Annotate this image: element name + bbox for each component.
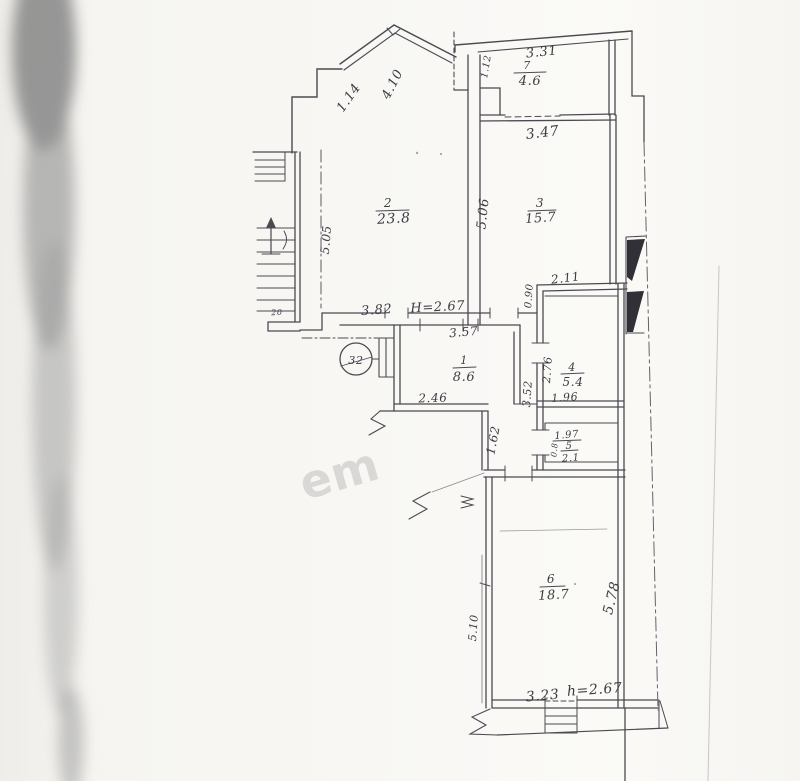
room2-number: 2 — [383, 196, 392, 210]
room6-area: 18.7 — [538, 587, 570, 604]
apartment-number: 32 — [348, 354, 363, 367]
dim-room3-width-top: 3.47 — [525, 123, 560, 143]
plan-labels: 1.14 4.10 3.31 7 4.6 1.12 3.47 2 23.8 5.… — [270, 43, 624, 705]
wall-lines — [253, 25, 719, 781]
room4-area: 5.4 — [563, 375, 584, 389]
watermark-text: em — [293, 437, 385, 511]
scan-smudge-artifact — [12, 0, 84, 781]
room3-area: 15.7 — [525, 210, 557, 227]
bay-window-walls — [292, 25, 468, 153]
dim-room2-height: 5.05 — [318, 225, 334, 255]
dim-room5-depth: 0.8 — [549, 442, 559, 457]
room3-number: 3 — [536, 196, 544, 210]
height-capital-h: H=2.67 — [409, 299, 466, 317]
room2-area: 23.8 — [376, 210, 411, 228]
stair-note: 20 — [270, 308, 283, 317]
hallway-walls — [369, 411, 488, 519]
room7-number: 7 — [523, 59, 531, 72]
dim-room6-width: 3.23 — [525, 687, 560, 706]
stair-direction-arrowhead — [266, 217, 276, 228]
dim-bay-right: 4.10 — [379, 67, 407, 103]
room1-area: 8.6 — [453, 370, 475, 385]
dim-hall-length: 1.62 — [483, 425, 502, 456]
floor-plan-drawing: em — [0, 0, 800, 781]
dim-room1-bottom: 2.46 — [417, 390, 448, 405]
dim-room4-height: 2.76 — [540, 356, 555, 385]
room5-number: 5 — [566, 441, 573, 452]
dim-room3-height: 5.06 — [474, 197, 492, 230]
dim-room6-left: 5.10 — [466, 614, 481, 642]
scanned-page: { "apartment": { "number_in_circle": "32… — [0, 0, 800, 781]
dim-niche-depth: 0.90 — [523, 283, 536, 308]
room1-number: 1 — [460, 354, 468, 367]
height-small-h: h=2.67 — [566, 680, 623, 700]
room4-number: 4 — [567, 361, 576, 374]
dim-room6-right: 5.78 — [600, 580, 624, 616]
room7-area: 4.6 — [518, 74, 541, 89]
right-dashdot-line — [644, 142, 658, 710]
faint-page-line — [708, 266, 719, 781]
room7-walls — [468, 40, 615, 325]
dim-room2-bottom: 3.82 — [361, 302, 393, 319]
dim-room4-width: 1.96 — [551, 390, 579, 405]
dim-room1-top: 3.57 — [449, 324, 479, 340]
dim-room7-depth: 1.12 — [479, 54, 494, 79]
right-wall — [618, 284, 624, 708]
room4-walls — [537, 296, 624, 407]
staircase — [253, 150, 322, 331]
dim-corridor-length: 3.52 — [520, 380, 535, 408]
bottom-porch — [470, 700, 668, 781]
room3-bottom-wall — [537, 283, 627, 291]
vent-shafts — [627, 239, 645, 332]
room3-right-wall — [610, 115, 616, 284]
room5-area: 2.1 — [561, 452, 580, 464]
room6-number: 6 — [547, 572, 555, 586]
dim-bay-left: 1.14 — [334, 81, 364, 115]
